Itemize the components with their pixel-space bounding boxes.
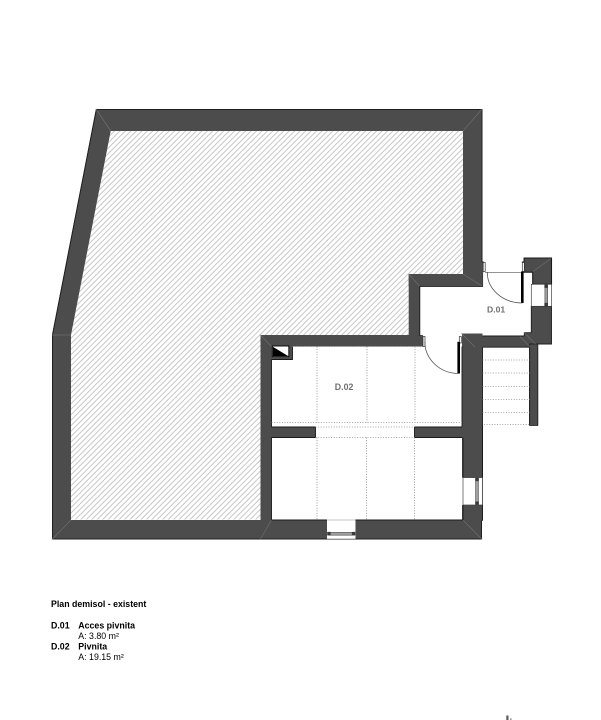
svg-text:D.01: D.01: [51, 621, 70, 631]
svg-text:Acces pivnita: Acces pivnita: [78, 621, 135, 631]
svg-text:Pivnita: Pivnita: [78, 642, 107, 652]
svg-text:A: 19.15 m²: A: 19.15 m²: [78, 652, 124, 662]
svg-text:Plan demisol - existent: Plan demisol - existent: [51, 599, 146, 609]
svg-text:D.01: D.01: [487, 304, 505, 314]
svg-text:A: 3.80 m²: A: 3.80 m²: [78, 631, 119, 641]
svg-text:D.02: D.02: [51, 642, 70, 652]
svg-text:D.02: D.02: [335, 382, 354, 392]
